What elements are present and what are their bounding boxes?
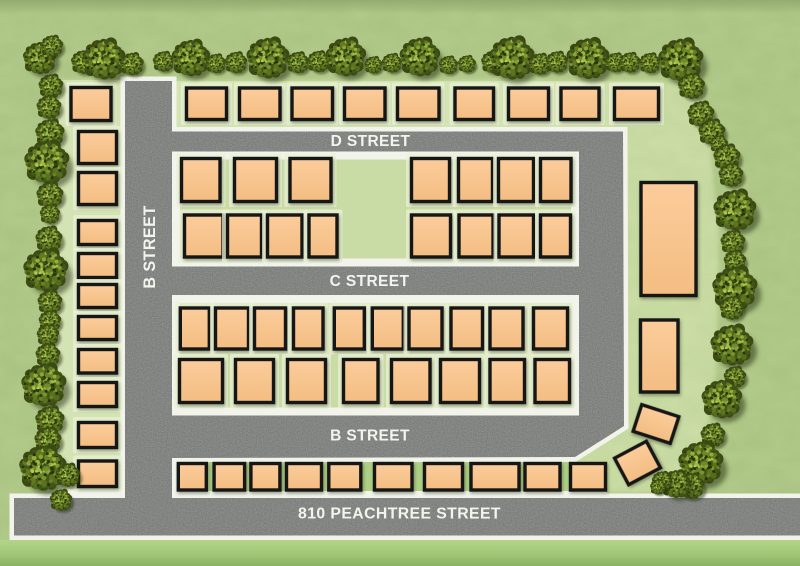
svg-text:C STREET: C STREET	[330, 273, 410, 290]
svg-text:B STREET: B STREET	[141, 205, 159, 288]
svg-text:B STREET: B STREET	[330, 427, 410, 444]
svg-text:D STREET: D STREET	[331, 133, 411, 150]
svg-text:810 PEACHTREE STREET: 810 PEACHTREE STREET	[298, 505, 501, 522]
